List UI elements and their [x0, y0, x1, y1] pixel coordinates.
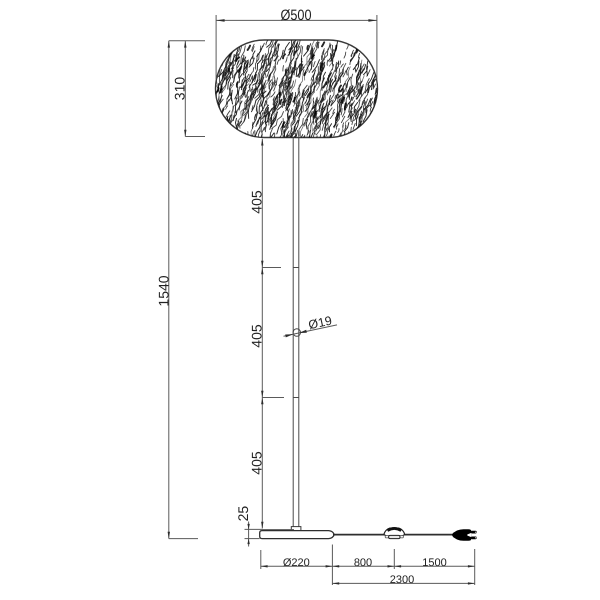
svg-text:405: 405 — [249, 451, 265, 475]
svg-text:Ø220: Ø220 — [283, 557, 310, 569]
svg-text:800: 800 — [354, 557, 372, 569]
svg-text:405: 405 — [249, 324, 265, 348]
svg-text:310: 310 — [172, 77, 188, 101]
svg-text:405: 405 — [249, 190, 265, 214]
svg-text:1540: 1540 — [156, 275, 172, 306]
svg-text:Ø500: Ø500 — [281, 7, 312, 24]
svg-text:Ø19: Ø19 — [307, 314, 333, 333]
svg-text:2300: 2300 — [390, 574, 414, 586]
svg-text:25: 25 — [235, 506, 251, 522]
svg-text:1500: 1500 — [422, 557, 446, 569]
